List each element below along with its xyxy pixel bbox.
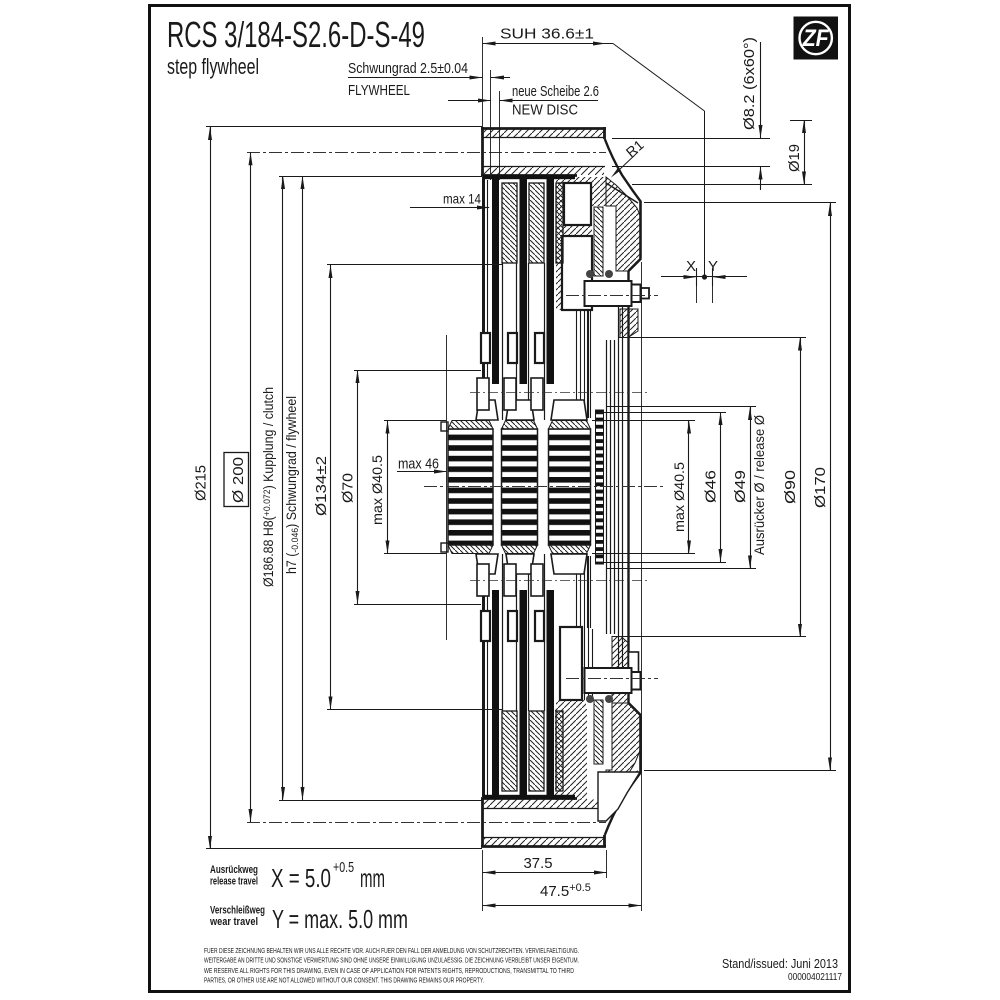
svg-text:neue Scheibe 2.6: neue Scheibe 2.6: [512, 83, 599, 100]
svg-text:RCS 3/184-S2.6-D-S-49: RCS 3/184-S2.6-D-S-49: [167, 14, 425, 55]
svg-text:X = 5.0: X = 5.0: [271, 863, 331, 893]
svg-text:Stand/issued: Juni 2013: Stand/issued: Juni 2013: [722, 956, 838, 971]
svg-text:max Ø40.5: max Ø40.5: [369, 455, 385, 525]
svg-text:WE RESERVE ALL RIGHTS FOR THIS: WE RESERVE ALL RIGHTS FOR THIS DRAWING, …: [204, 968, 574, 975]
svg-text:NEW DISC: NEW DISC: [512, 102, 578, 119]
svg-text:wear travel: wear travel: [209, 916, 258, 928]
svg-text:Ø170: Ø170: [812, 467, 829, 508]
svg-text:Ø70: Ø70: [340, 473, 357, 503]
svg-text:SUH 36.6±1: SUH 36.6±1: [500, 26, 594, 43]
svg-text:Verschleißweg: Verschleißweg: [210, 905, 265, 917]
svg-text:Ausrückweg: Ausrückweg: [210, 864, 258, 876]
svg-text:ZF: ZF: [802, 25, 830, 52]
svg-text:+0.5: +0.5: [333, 859, 354, 876]
svg-text:Ø186.88 H8(+0.072) Kupplung /: Ø186.88 H8(+0.072) Kupplung / clutch: [261, 387, 276, 587]
svg-text:000004021117: 000004021117: [788, 972, 842, 983]
svg-text:Ø8.2 (6x60°): Ø8.2 (6x60°): [741, 37, 758, 130]
svg-text:Ø46: Ø46: [703, 470, 720, 503]
svg-text:WEITERGABE AN DRITTE UND SONST: WEITERGABE AN DRITTE UND SONSTIGE VERWER…: [204, 958, 579, 965]
svg-text:Ø215: Ø215: [193, 465, 210, 501]
svg-text:37.5: 37.5: [524, 855, 553, 872]
svg-text:step flywheel: step flywheel: [167, 54, 259, 79]
svg-text:FLYWHEEL: FLYWHEEL: [348, 82, 410, 99]
svg-text:mm: mm: [360, 863, 385, 893]
svg-text:Schwungrad 2.5±0.04: Schwungrad 2.5±0.04: [348, 60, 468, 77]
svg-text:Ø 200: Ø 200: [230, 457, 247, 503]
svg-text:max Ø40.5: max Ø40.5: [671, 462, 687, 532]
svg-text:release travel: release travel: [210, 876, 258, 888]
svg-text:Y = max. 5.0 mm: Y = max. 5.0 mm: [272, 904, 408, 934]
svg-text:max 14: max 14: [443, 191, 481, 207]
svg-text:FUER DIESE ZEICHNUNG BEHALTEN: FUER DIESE ZEICHNUNG BEHALTEN WIR UNS AL…: [204, 948, 579, 955]
svg-text:PARTIES, OR OTHER USE ARE NOT: PARTIES, OR OTHER USE ARE NOT ALLOWED WI…: [204, 978, 484, 985]
svg-text:Ausrücker Ø / release Ø: Ausrücker Ø / release Ø: [752, 415, 767, 555]
svg-text:Ø134±2: Ø134±2: [313, 456, 330, 516]
svg-text:Ø49: Ø49: [732, 470, 749, 503]
svg-text:X: X: [686, 258, 696, 275]
svg-text:max 46: max 46: [398, 456, 439, 473]
svg-text:Ø19: Ø19: [786, 144, 803, 172]
svg-text:Ø90: Ø90: [782, 470, 799, 504]
